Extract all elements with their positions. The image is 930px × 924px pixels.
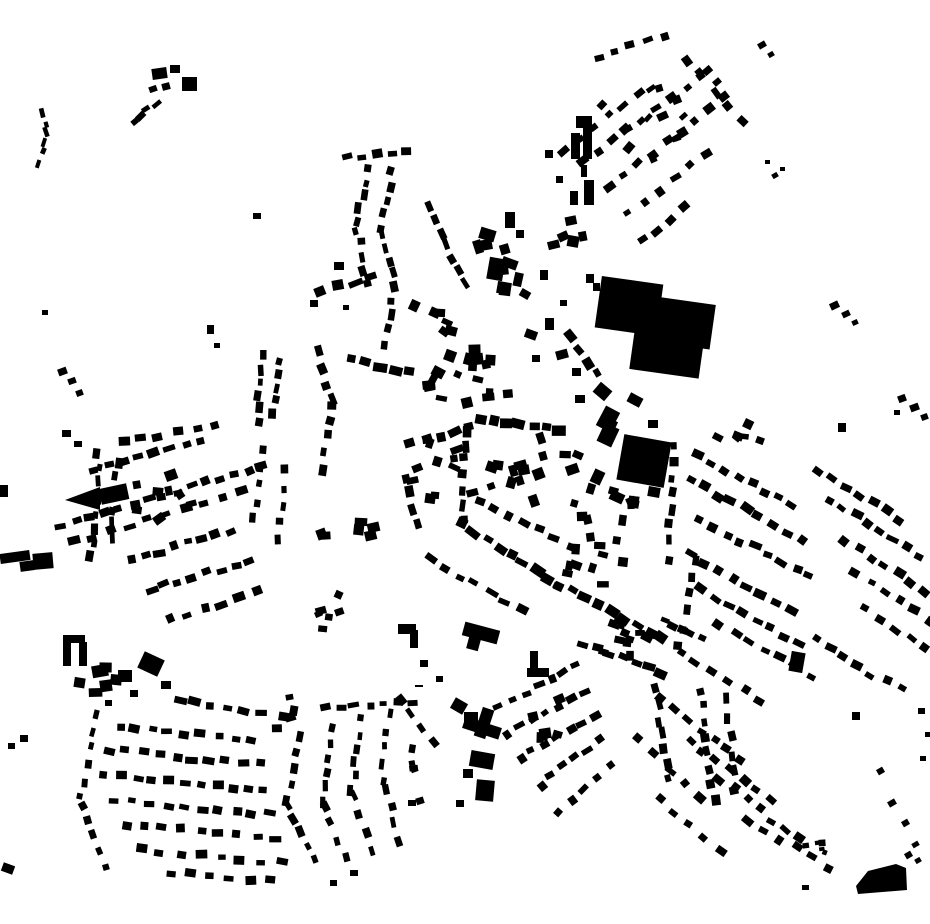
building (463, 769, 473, 778)
building (542, 423, 552, 432)
building (176, 824, 185, 833)
building (207, 325, 214, 334)
building (180, 780, 191, 787)
building (424, 493, 436, 504)
building (325, 613, 333, 621)
building (705, 779, 715, 789)
building (918, 708, 925, 714)
building (19, 560, 34, 572)
building (154, 849, 164, 857)
building (256, 759, 265, 767)
building (894, 410, 900, 415)
building (626, 651, 634, 661)
building (628, 499, 639, 509)
building (583, 128, 592, 159)
building (680, 626, 687, 634)
building (802, 885, 809, 890)
building (91, 540, 98, 548)
building (255, 417, 264, 427)
building (367, 703, 374, 710)
building (612, 536, 621, 545)
building (206, 702, 214, 710)
building (281, 486, 286, 493)
building (408, 744, 416, 753)
building (815, 840, 822, 845)
building (765, 160, 770, 164)
building (556, 176, 563, 183)
building (81, 778, 88, 787)
building (281, 464, 289, 473)
building (482, 393, 495, 402)
building (496, 281, 512, 295)
building (459, 453, 468, 461)
building (517, 464, 530, 475)
building (665, 556, 673, 565)
building (683, 604, 691, 615)
building (593, 283, 600, 291)
building (254, 499, 261, 507)
building (259, 445, 267, 454)
building (170, 65, 180, 73)
footprint-map-canvas (0, 0, 930, 924)
building (381, 341, 388, 350)
building (109, 798, 119, 804)
building (216, 733, 224, 740)
building (99, 771, 107, 779)
building (254, 834, 263, 840)
building (243, 785, 253, 793)
building (214, 343, 220, 348)
building (178, 730, 189, 739)
building (198, 827, 207, 834)
building (364, 164, 372, 173)
building (463, 426, 472, 438)
building (838, 423, 846, 432)
building (570, 191, 578, 205)
building (357, 237, 365, 244)
building (258, 786, 267, 793)
building (62, 430, 71, 437)
building (700, 701, 707, 708)
building (260, 350, 266, 360)
building (85, 760, 93, 769)
building (324, 430, 332, 439)
building (516, 230, 524, 238)
building (472, 353, 484, 366)
building (597, 581, 609, 587)
building (552, 425, 566, 435)
building (8, 743, 15, 749)
building (415, 685, 423, 687)
building (382, 742, 387, 749)
building (532, 355, 540, 362)
building (347, 354, 357, 363)
building (89, 688, 103, 697)
building (136, 843, 148, 853)
building (256, 463, 263, 472)
building (688, 573, 695, 583)
building (920, 756, 926, 761)
building (110, 533, 115, 544)
building (711, 794, 721, 806)
building (128, 797, 136, 803)
building (403, 366, 414, 376)
map-background (0, 0, 930, 924)
building (647, 486, 661, 498)
building (163, 776, 174, 785)
building (132, 480, 141, 489)
building (310, 300, 318, 307)
building (571, 544, 580, 555)
building (272, 724, 282, 732)
building (185, 757, 198, 765)
building (155, 750, 165, 758)
building (91, 523, 98, 535)
building (212, 829, 223, 837)
building (527, 668, 549, 677)
building (205, 872, 214, 879)
building (0, 485, 8, 497)
building (275, 534, 281, 544)
building (668, 475, 674, 483)
building (105, 700, 112, 706)
building (238, 759, 249, 766)
building (500, 418, 512, 428)
building (73, 677, 85, 689)
building (380, 701, 387, 706)
building (32, 552, 53, 570)
building (117, 724, 125, 731)
building (456, 800, 464, 807)
map-page (0, 0, 930, 924)
building (328, 739, 333, 748)
building (232, 736, 241, 743)
building (560, 300, 567, 306)
building (330, 880, 337, 886)
building (327, 401, 336, 409)
building (594, 542, 606, 550)
building (197, 806, 209, 814)
building (545, 150, 553, 158)
building (253, 213, 261, 219)
building (95, 475, 100, 486)
building (219, 756, 229, 765)
building (664, 518, 673, 528)
building (213, 780, 224, 789)
building (459, 486, 466, 496)
building (353, 744, 361, 754)
building (357, 732, 362, 740)
building (586, 274, 594, 283)
building (581, 165, 587, 177)
building (371, 148, 383, 159)
building (669, 457, 678, 466)
building (116, 771, 127, 779)
building (802, 842, 809, 848)
building (648, 420, 658, 428)
building (350, 756, 357, 767)
building (196, 850, 208, 859)
building (173, 753, 183, 762)
building (318, 464, 327, 476)
building (194, 729, 206, 738)
building (269, 836, 281, 842)
building (666, 535, 672, 545)
building (586, 532, 595, 542)
building (337, 705, 347, 711)
building (233, 856, 244, 865)
building (567, 235, 580, 248)
building (401, 147, 411, 155)
building (92, 448, 100, 459)
building (218, 854, 226, 859)
building (233, 807, 242, 816)
building (134, 433, 146, 441)
building (559, 451, 571, 459)
building (475, 779, 495, 801)
building (42, 310, 48, 315)
building (387, 298, 394, 305)
building (409, 760, 416, 766)
building (63, 635, 85, 643)
building (152, 487, 163, 496)
building (331, 279, 344, 291)
building (265, 875, 276, 883)
building (79, 642, 87, 666)
building (350, 870, 358, 876)
building (436, 432, 446, 443)
building (63, 642, 71, 666)
building (130, 690, 138, 697)
building (635, 630, 645, 636)
building (182, 77, 197, 91)
building (255, 710, 267, 716)
building (228, 784, 239, 793)
building (173, 426, 184, 435)
building (584, 180, 594, 205)
building (232, 830, 241, 839)
building (354, 518, 367, 527)
building (140, 822, 148, 831)
building (700, 733, 710, 743)
building (618, 515, 627, 527)
building (925, 732, 930, 737)
building (576, 116, 592, 128)
building (120, 746, 130, 754)
building (618, 557, 629, 567)
building (420, 660, 428, 667)
building (258, 365, 264, 376)
building (422, 380, 436, 390)
building (132, 506, 143, 515)
building (724, 713, 730, 724)
building (318, 625, 327, 632)
building (118, 670, 132, 682)
building (577, 512, 588, 522)
building (545, 318, 554, 330)
building (146, 776, 156, 784)
building (74, 441, 82, 447)
building (119, 436, 131, 445)
building (127, 554, 136, 564)
building (382, 729, 389, 737)
building (268, 408, 276, 418)
building (659, 743, 668, 754)
building (462, 441, 469, 454)
building (729, 751, 736, 761)
building (539, 727, 552, 739)
building (245, 876, 256, 885)
building (258, 378, 263, 385)
building (409, 765, 418, 772)
building (701, 718, 708, 727)
building (144, 801, 155, 807)
building (249, 512, 256, 522)
building (388, 151, 398, 157)
building (20, 735, 28, 742)
building (76, 793, 83, 800)
building (408, 800, 416, 806)
building (357, 154, 366, 160)
building (255, 401, 263, 413)
building (357, 714, 364, 722)
building (571, 133, 580, 159)
building (151, 67, 167, 80)
building (177, 850, 187, 859)
building (354, 202, 362, 214)
building (223, 875, 233, 881)
building (343, 305, 349, 310)
building (852, 712, 860, 720)
building (780, 167, 785, 171)
building (256, 860, 265, 865)
building (671, 442, 677, 449)
building (575, 395, 585, 403)
building (410, 630, 418, 648)
building (503, 389, 513, 398)
building (616, 434, 671, 488)
building (505, 212, 515, 228)
building (450, 455, 458, 463)
building (161, 681, 171, 689)
building (334, 262, 344, 270)
building (540, 270, 548, 280)
building (530, 423, 540, 431)
building (109, 516, 114, 527)
building (407, 700, 417, 706)
building (166, 870, 176, 877)
building (474, 414, 487, 425)
building (353, 771, 359, 780)
building (139, 747, 150, 755)
building (723, 693, 729, 704)
building (276, 518, 284, 525)
building (436, 676, 443, 682)
building (122, 821, 133, 831)
building (323, 780, 328, 791)
building (93, 511, 99, 519)
building (115, 457, 124, 469)
building (184, 868, 196, 878)
building (161, 728, 172, 734)
building (572, 368, 581, 376)
